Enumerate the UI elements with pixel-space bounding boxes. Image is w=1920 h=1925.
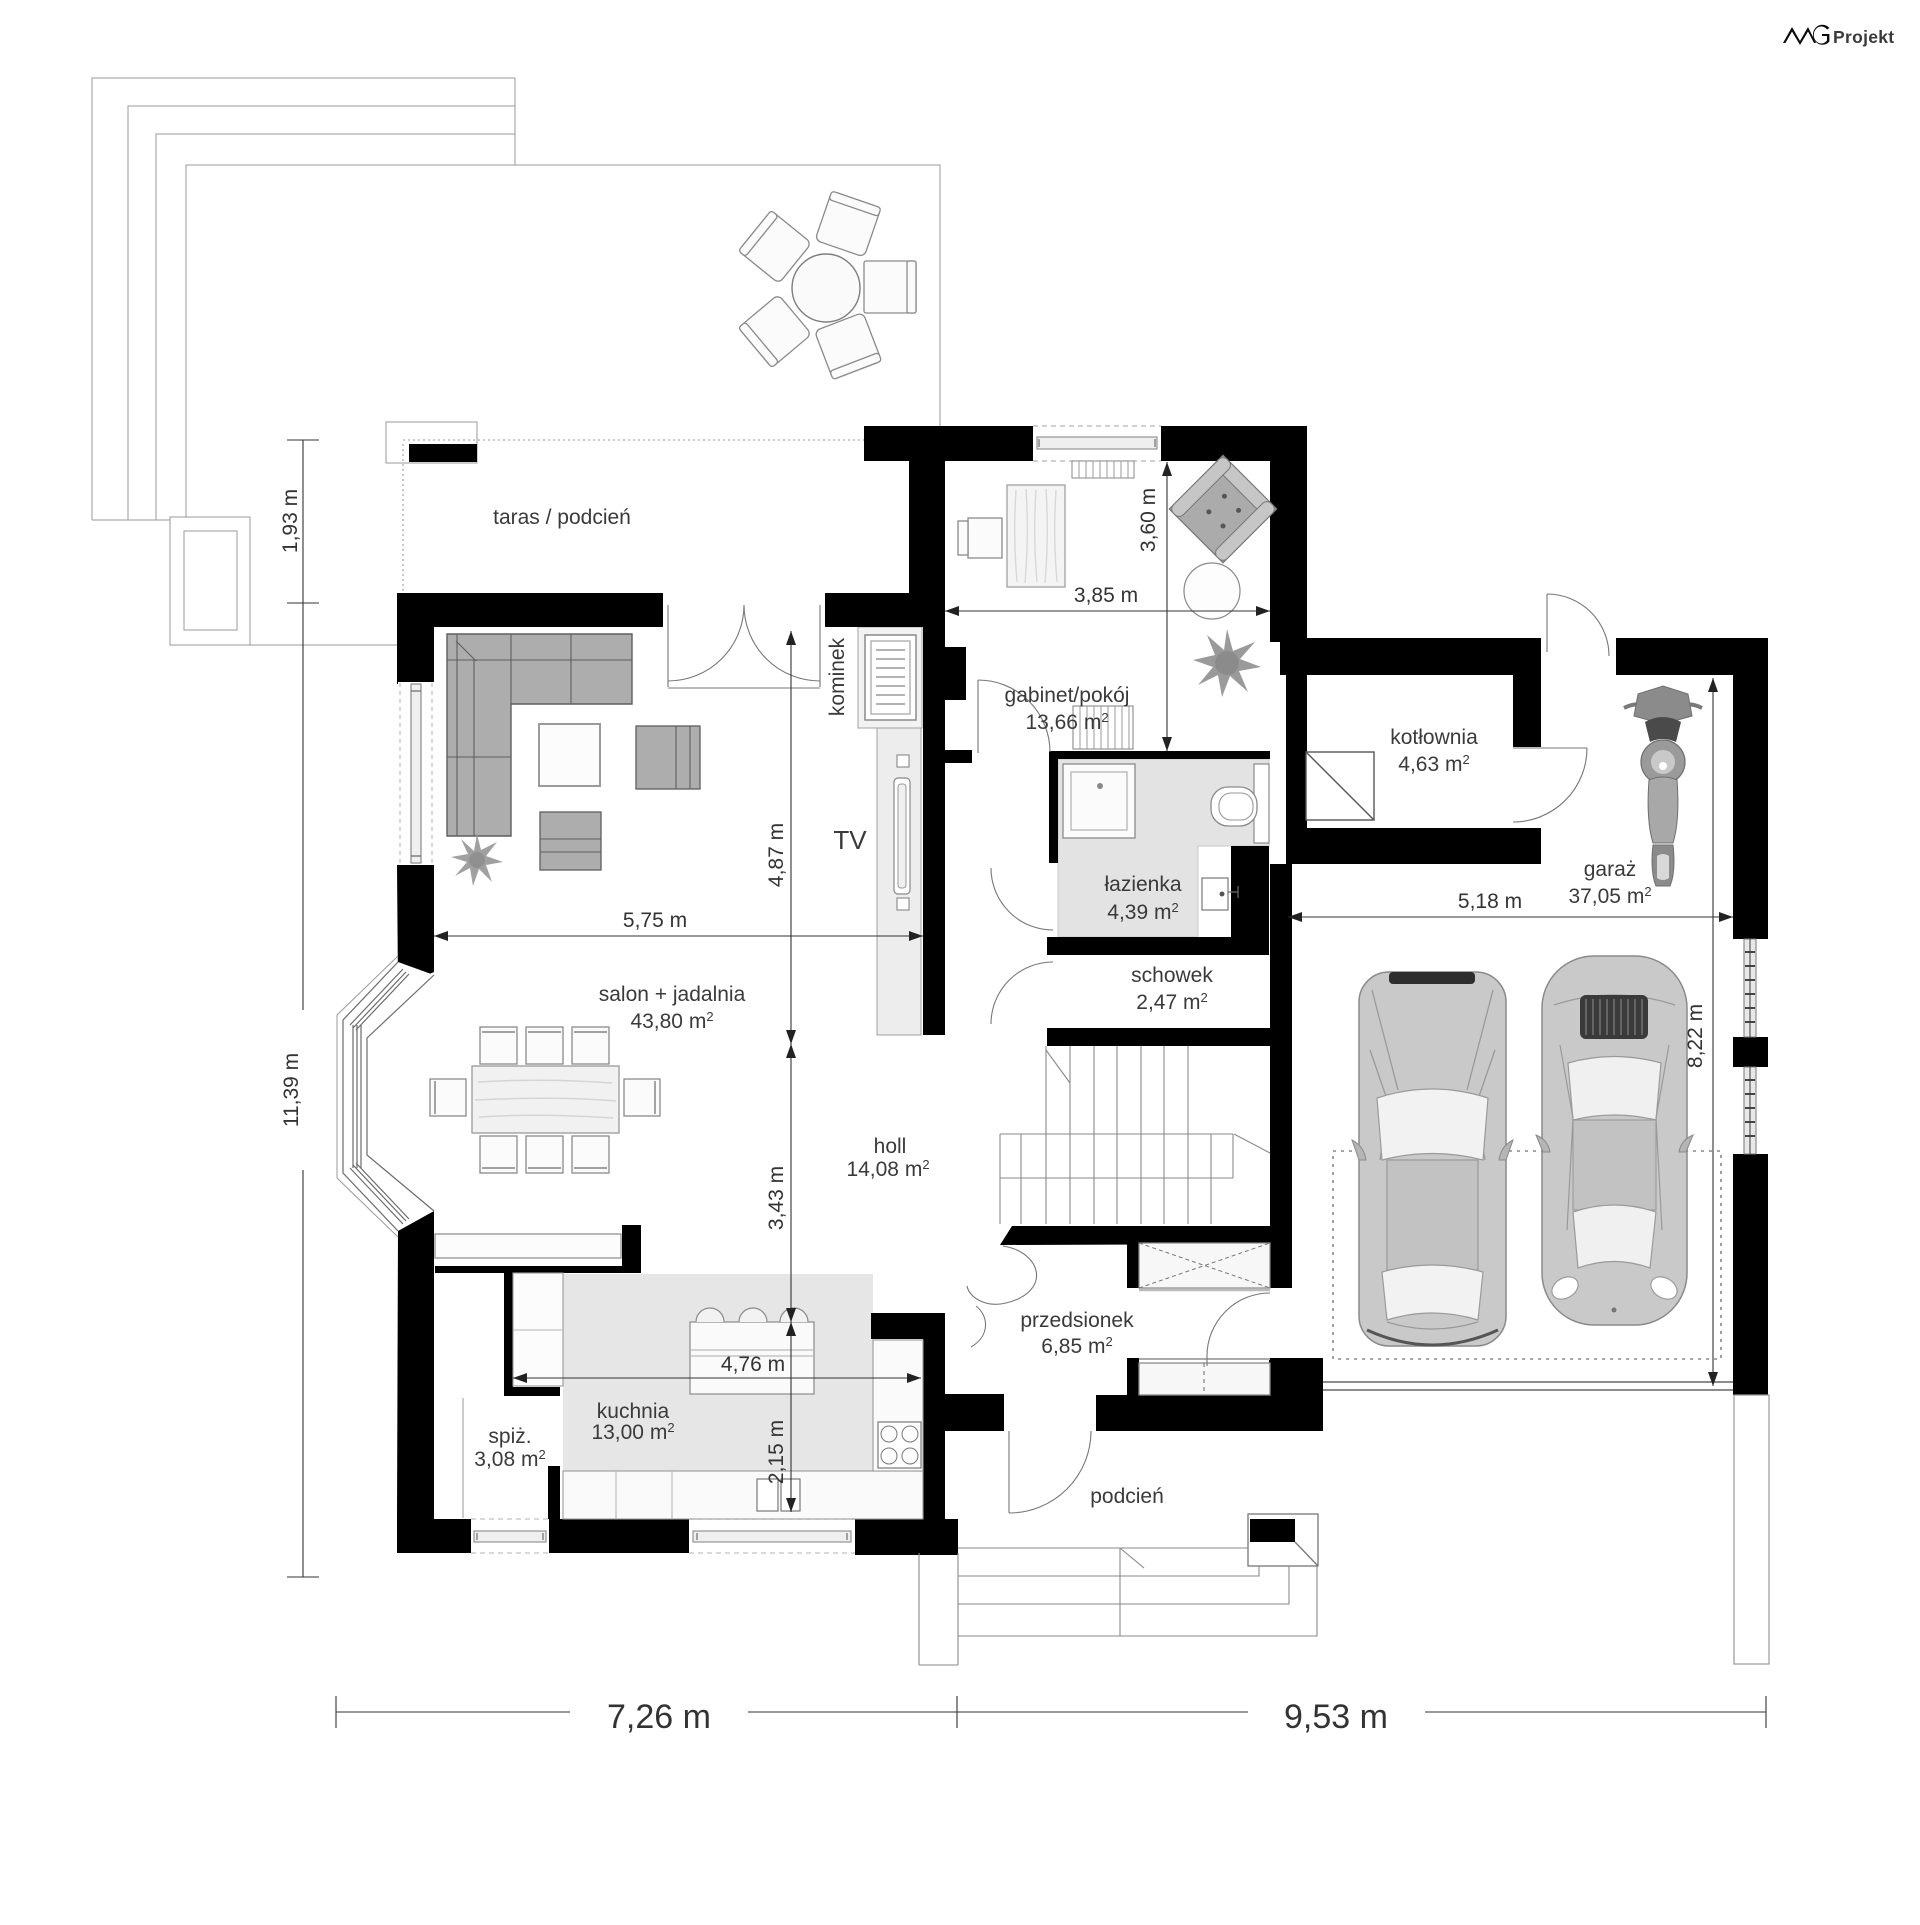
svg-text:łazienka: łazienka (1104, 873, 1181, 896)
svg-text:6,85 m2: 6,85 m2 (1041, 1334, 1112, 1358)
svg-text:5,75 m: 5,75 m (623, 909, 687, 932)
svg-text:kominek: kominek (826, 637, 849, 716)
svg-text:4,76 m: 4,76 m (721, 1353, 785, 1376)
svg-text:kuchnia: kuchnia (597, 1400, 670, 1423)
svg-text:4,39 m2: 4,39 m2 (1107, 900, 1178, 924)
svg-text:1,93 m: 1,93 m (279, 489, 302, 553)
svg-text:schowek: schowek (1131, 964, 1213, 987)
svg-text:7,26 m: 7,26 m (607, 1698, 711, 1736)
svg-text:Projekt: Projekt (1833, 27, 1894, 47)
svg-text:3,60 m: 3,60 m (1137, 488, 1160, 552)
svg-text:3,85 m: 3,85 m (1074, 584, 1138, 607)
svg-text:holl: holl (874, 1135, 907, 1158)
svg-text:5,18 m: 5,18 m (1458, 890, 1522, 913)
svg-text:kotłownia: kotłownia (1390, 726, 1478, 749)
svg-text:43,80 m2: 43,80 m2 (630, 1009, 713, 1033)
svg-text:garaż: garaż (1584, 858, 1637, 881)
svg-text:2,47 m2: 2,47 m2 (1136, 990, 1207, 1014)
svg-text:37,05 m2: 37,05 m2 (1568, 884, 1651, 908)
svg-text:TV: TV (833, 825, 867, 855)
svg-text:gabinet/pokój: gabinet/pokój (1005, 684, 1130, 707)
svg-text:podcień: podcień (1090, 1485, 1164, 1508)
svg-text:3,08 m2: 3,08 m2 (474, 1447, 545, 1471)
svg-text:14,08 m2: 14,08 m2 (846, 1157, 929, 1181)
svg-text:taras / podcień: taras / podcień (493, 506, 631, 529)
svg-text:2,15 m: 2,15 m (765, 1420, 788, 1484)
svg-text:4,87 m: 4,87 m (765, 823, 788, 887)
svg-text:salon + jadalnia: salon + jadalnia (599, 983, 746, 1006)
svg-text:4,63 m2: 4,63 m2 (1398, 752, 1469, 776)
svg-text:9,53 m: 9,53 m (1284, 1698, 1388, 1736)
svg-text:13,66 m2: 13,66 m2 (1025, 710, 1108, 734)
svg-text:przedsionek: przedsionek (1020, 1309, 1134, 1332)
svg-text:11,39 m: 11,39 m (280, 1053, 303, 1127)
svg-text:spiż.: spiż. (488, 1425, 531, 1448)
svg-text:8,22 m: 8,22 m (1684, 1004, 1707, 1068)
svg-text:13,00 m2: 13,00 m2 (591, 1420, 674, 1444)
svg-text:3,43 m: 3,43 m (765, 1166, 788, 1230)
